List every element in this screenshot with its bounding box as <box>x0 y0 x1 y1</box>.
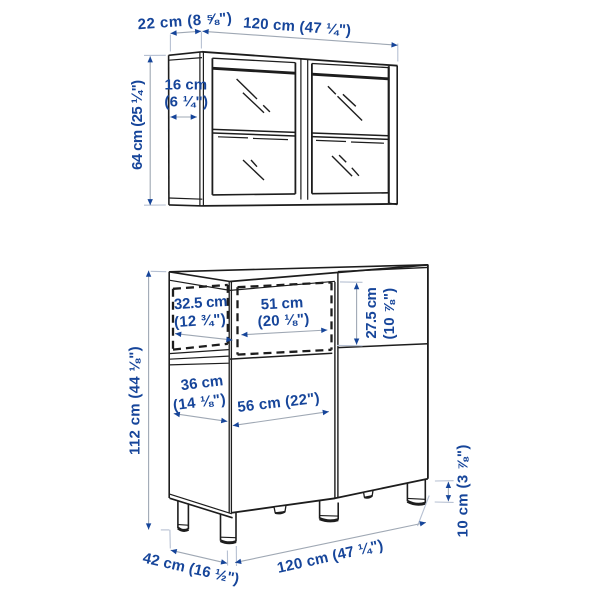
svg-text:(10 ⅞"): (10 ⅞") <box>381 288 398 340</box>
svg-text:16 cm: 16 cm <box>165 76 208 93</box>
svg-text:112 cm (44 ⅛"): 112 cm (44 ⅛") <box>127 346 144 455</box>
svg-text:(12 ¾"): (12 ¾") <box>174 311 227 331</box>
svg-text:(6 ¼"): (6 ¼") <box>164 94 208 111</box>
svg-text:27.5 cm: 27.5 cm <box>363 288 380 339</box>
svg-text:32.5 cm: 32.5 cm <box>173 293 227 313</box>
svg-text:64 cm (25 ¼"): 64 cm (25 ¼") <box>129 80 146 170</box>
svg-text:10 cm (3 ⅞"): 10 cm (3 ⅞") <box>454 444 471 537</box>
svg-text:(20 ⅛"): (20 ⅛") <box>257 311 310 331</box>
